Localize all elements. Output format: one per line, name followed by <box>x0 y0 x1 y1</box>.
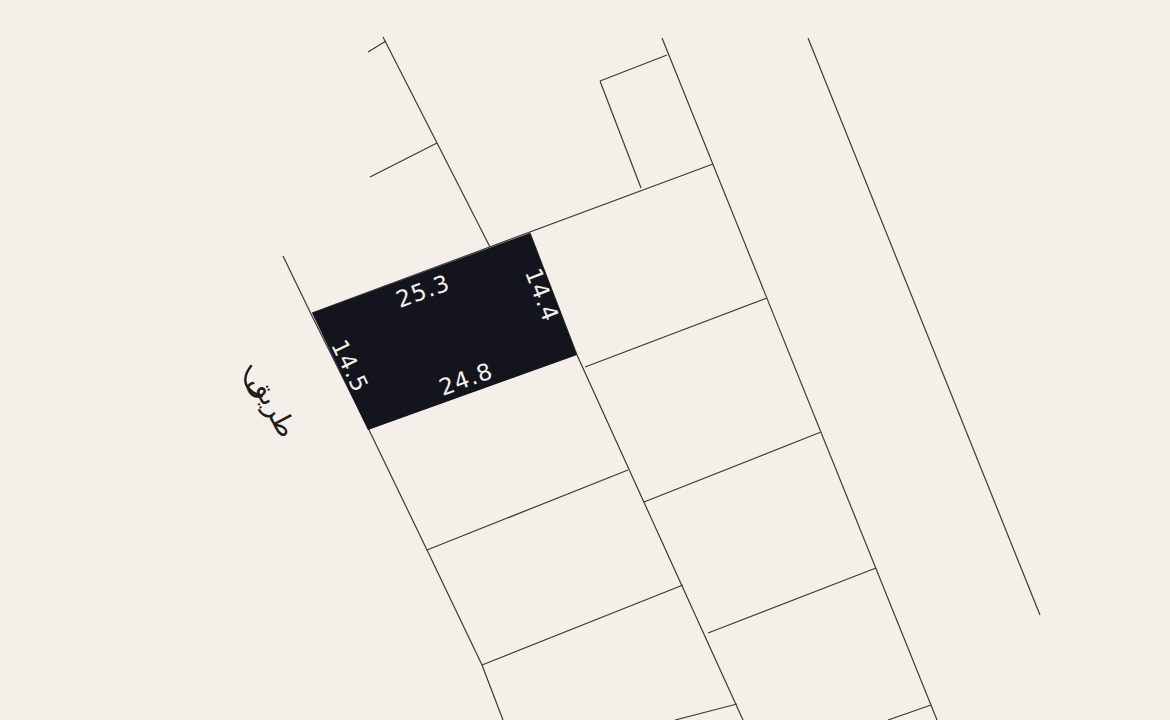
upper-left-line <box>383 37 490 247</box>
upper-tick-1 <box>368 41 386 52</box>
upper-tick-2 <box>370 143 437 177</box>
parcel-map-svg <box>0 0 1170 720</box>
right-divider-3 <box>708 568 876 633</box>
right-divider-1 <box>585 298 767 367</box>
right-divider-4 <box>888 705 931 720</box>
small-parcel-left-edge <box>600 81 641 188</box>
east-boundary-line <box>662 38 937 720</box>
middle-divider-2 <box>482 585 683 665</box>
middle-divider-1 <box>427 470 628 550</box>
map-canvas[interactable]: 25.3 14.4 24.8 14.5 طريق <box>0 0 1170 720</box>
right-divider-2 <box>644 432 821 502</box>
middle-column-east-line <box>530 233 743 720</box>
small-parcel-top-edge <box>600 55 667 81</box>
far-right-road-line <box>808 38 1040 615</box>
middle-divider-3 <box>675 704 737 720</box>
